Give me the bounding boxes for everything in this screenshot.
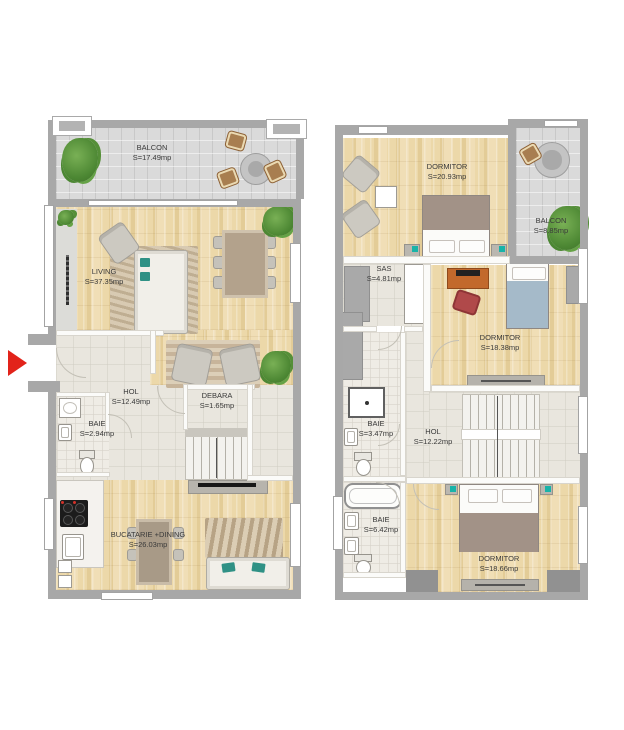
room-label-living: LIVING S=37.35mp bbox=[85, 267, 124, 287]
nightstand bbox=[540, 484, 553, 495]
tv bbox=[198, 483, 256, 487]
outer-wall-bottom bbox=[335, 592, 588, 600]
toilet bbox=[352, 452, 374, 474]
balcony2-wall-bottom bbox=[516, 256, 580, 264]
bathroom-sink bbox=[344, 428, 358, 446]
window bbox=[290, 503, 301, 567]
window bbox=[333, 496, 343, 550]
room-label-sas: SAS S=4.81mp bbox=[367, 264, 401, 284]
double-bed bbox=[459, 484, 539, 552]
shower bbox=[348, 387, 385, 418]
armchair bbox=[218, 343, 261, 388]
single-bed bbox=[506, 263, 549, 329]
room-label-balcon: BALCON S=17.49mp bbox=[133, 143, 172, 163]
balcony2-wall-left bbox=[508, 119, 516, 264]
stairs-direction-line bbox=[497, 396, 498, 480]
side-table bbox=[375, 186, 397, 208]
bathroom-sink bbox=[58, 424, 72, 441]
stairs-rail bbox=[462, 430, 540, 439]
stove bbox=[60, 500, 88, 527]
exterior-notch bbox=[343, 578, 400, 592]
room-label-baie3: BAIE S=6.42mp bbox=[364, 515, 398, 535]
window bbox=[44, 498, 54, 550]
partition-wall bbox=[183, 384, 255, 390]
partition-wall bbox=[247, 475, 293, 481]
armchair bbox=[170, 343, 213, 388]
room-label-baie: BAIE S=2.94mp bbox=[80, 419, 114, 439]
dining-table bbox=[222, 230, 268, 298]
partition-wall bbox=[406, 477, 580, 484]
partition-wall bbox=[400, 482, 406, 574]
balcony-pillar bbox=[52, 116, 92, 136]
toilet bbox=[352, 554, 374, 574]
living-balcony-window bbox=[88, 200, 238, 206]
desk-monitor bbox=[456, 270, 480, 276]
partition-wall bbox=[150, 330, 156, 374]
counter-cabinet bbox=[58, 575, 72, 588]
kitchen-rug bbox=[205, 518, 283, 558]
entry-wall-stub bbox=[28, 381, 60, 392]
partition-wall bbox=[56, 330, 164, 336]
double-bed bbox=[422, 195, 490, 257]
partition-wall bbox=[400, 332, 406, 476]
floor-accent bbox=[547, 570, 580, 592]
balcony-table bbox=[534, 142, 570, 178]
partition-wall bbox=[431, 385, 580, 392]
room-label-dormitor1: DORMITOR S=20.93mp bbox=[427, 162, 468, 182]
partition-wall bbox=[423, 264, 431, 392]
entry-wall-stub bbox=[28, 334, 50, 345]
bench-detail bbox=[475, 584, 525, 586]
bathroom-sink bbox=[344, 512, 359, 530]
balcony-pillar bbox=[266, 119, 307, 139]
stairs-direction-line bbox=[216, 438, 217, 478]
entrance-arrow-icon bbox=[8, 350, 27, 376]
room-label-balcon2: BALCON S=8.85mp bbox=[534, 216, 568, 236]
partition-wall bbox=[343, 476, 406, 482]
sofa-cushion bbox=[140, 272, 150, 281]
dresser-detail bbox=[481, 380, 531, 382]
nightstand bbox=[445, 484, 458, 495]
partition-wall bbox=[404, 326, 423, 332]
window bbox=[101, 592, 153, 600]
window bbox=[578, 396, 588, 454]
washing-machine bbox=[59, 398, 81, 418]
partition-wall bbox=[247, 384, 253, 480]
radiator bbox=[66, 255, 69, 305]
floor-accent bbox=[406, 570, 438, 592]
room-label-hol: HOL S=12.49mp bbox=[112, 387, 151, 407]
sofa-cushion bbox=[140, 258, 150, 267]
partition-wall bbox=[343, 326, 377, 332]
sofa-cushion bbox=[251, 562, 265, 573]
kitchen-sink bbox=[62, 534, 84, 560]
room-label-bucatarie: BUCATARIE +DINING S=26.03mp bbox=[111, 530, 186, 550]
outer-wall-bottom bbox=[48, 590, 301, 599]
counter-cabinet bbox=[58, 560, 72, 573]
partition-wall bbox=[343, 256, 510, 264]
room-label-dormitor2: DORMITOR S=18.38mp bbox=[480, 333, 521, 353]
room-label-dormitor3: DORMITOR S=18.66mp bbox=[479, 554, 520, 574]
window bbox=[44, 205, 54, 327]
window bbox=[290, 243, 301, 303]
floor-plan-canvas: BALCON S=17.49mp LIVING S=37.35mp HOL S=… bbox=[0, 0, 624, 730]
partition-wall bbox=[56, 392, 110, 397]
room-label-hol2: HOL S=12.22mp bbox=[414, 427, 453, 447]
toilet bbox=[77, 450, 95, 474]
window bbox=[544, 120, 578, 127]
bathroom-sink bbox=[344, 537, 359, 555]
kitchen-sofa bbox=[206, 557, 290, 590]
room-label-debara: DEBARA S=1.65mp bbox=[200, 391, 234, 411]
partition-wall bbox=[56, 472, 110, 477]
room-label-baie2: BAIE S=3.47mp bbox=[359, 419, 393, 439]
entry-porch bbox=[28, 345, 56, 381]
island-chair bbox=[173, 549, 184, 561]
window bbox=[578, 248, 588, 304]
window bbox=[358, 126, 388, 134]
stairs-landing bbox=[185, 428, 248, 437]
window bbox=[578, 506, 588, 564]
sofa-cushion bbox=[221, 562, 235, 573]
